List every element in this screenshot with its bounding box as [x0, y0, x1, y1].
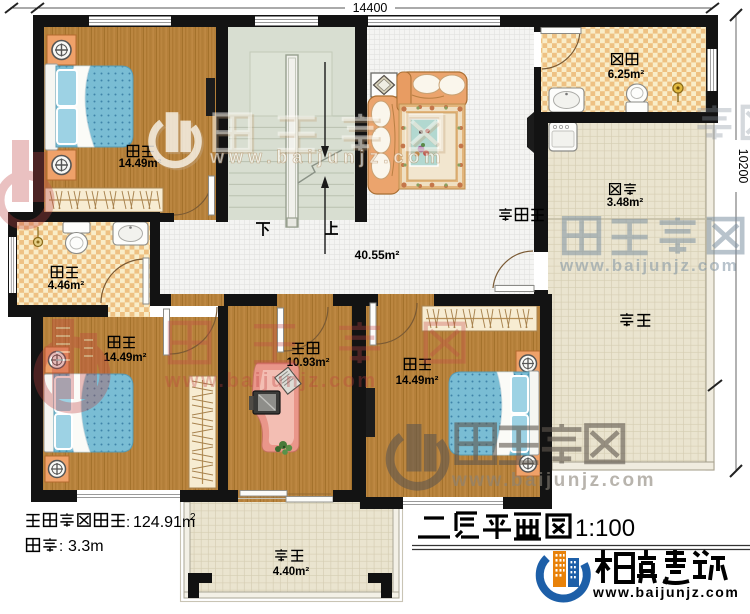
svg-text:14400: 14400 [353, 1, 388, 15]
svg-text:4.40m²: 4.40m² [273, 566, 310, 578]
svg-text:www.baijunjz.com: www.baijunjz.com [592, 584, 739, 600]
svg-text:6.25m²: 6.25m² [608, 69, 645, 81]
svg-text:www.baijunjz.com: www.baijunjz.com [164, 370, 378, 392]
svg-text::: : [126, 514, 130, 531]
svg-text:14.49m²: 14.49m² [119, 158, 162, 170]
svg-text::: : [59, 538, 63, 555]
svg-text:4.46m²: 4.46m² [48, 280, 85, 292]
svg-text:40.55m²: 40.55m² [355, 248, 400, 262]
svg-text:www.baijunjz.com: www.baijunjz.com [559, 256, 739, 275]
svg-text:14.49m²: 14.49m² [396, 375, 439, 387]
svg-text:14.49m²: 14.49m² [104, 352, 147, 364]
svg-text:www.baijunjz.com: www.baijunjz.com [451, 470, 656, 491]
svg-text:3.48m²: 3.48m² [607, 197, 644, 209]
svg-text:1:100: 1:100 [575, 515, 635, 542]
svg-text:3.3m: 3.3m [68, 538, 104, 555]
svg-text:10200: 10200 [736, 149, 750, 184]
svg-text:124.91m: 124.91m [133, 514, 195, 531]
svg-text:2: 2 [190, 512, 196, 523]
svg-text:www.baijunjz.com: www.baijunjz.com [209, 147, 445, 167]
